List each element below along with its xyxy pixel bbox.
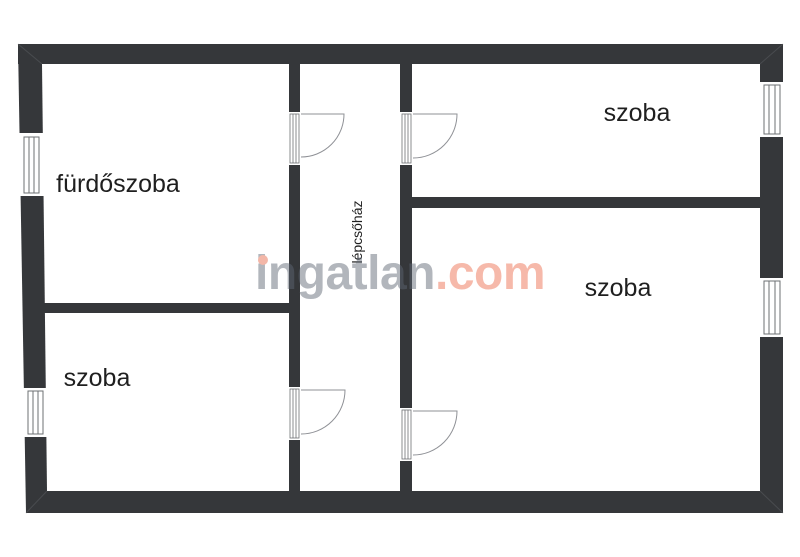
door-swing-arc xyxy=(413,114,457,158)
window-szoba-top-right xyxy=(759,82,785,137)
window-frame xyxy=(764,281,780,334)
room-label-lepcsohaz: lépcsőház xyxy=(349,200,365,263)
door-furdoszoba xyxy=(288,112,344,165)
door-swing-arc xyxy=(301,390,345,434)
room-label-szoba-bottom-left: szoba xyxy=(64,364,131,392)
outer-wall-bottom xyxy=(26,491,783,513)
door-szoba-bottom-left xyxy=(288,387,345,440)
outer-wall-left xyxy=(18,44,47,513)
window-furdoszoba xyxy=(19,133,44,196)
window-frame xyxy=(28,391,43,434)
window-szoba-bottom-right xyxy=(759,278,785,337)
floorplan-drawing: fürdőszoba szoba szoba szoba lépcsőház xyxy=(0,0,800,557)
room-label-furdoszoba: fürdőszoba xyxy=(56,170,180,198)
window-szoba-bottom-left xyxy=(23,388,48,437)
door-jamb xyxy=(290,114,299,163)
outer-wall-top xyxy=(18,44,783,64)
room-label-szoba-bottom-right: szoba xyxy=(585,274,652,302)
window-frame xyxy=(764,85,780,134)
wall-divider-left-rooms xyxy=(40,303,300,313)
door-jamb xyxy=(402,114,411,163)
wall-divider-right-rooms xyxy=(400,197,760,208)
door-swing-arc xyxy=(301,114,344,157)
door-szoba-bottom-right xyxy=(399,408,457,461)
door-szoba-top-right xyxy=(399,112,457,165)
door-swing-arc xyxy=(413,411,457,455)
door-jamb xyxy=(402,410,411,459)
floorplan-image: fürdőszoba szoba szoba szoba lépcsőház i… xyxy=(0,0,800,557)
door-jamb xyxy=(290,389,299,438)
room-label-szoba-top-right: szoba xyxy=(604,99,671,127)
window-frame xyxy=(24,137,39,193)
